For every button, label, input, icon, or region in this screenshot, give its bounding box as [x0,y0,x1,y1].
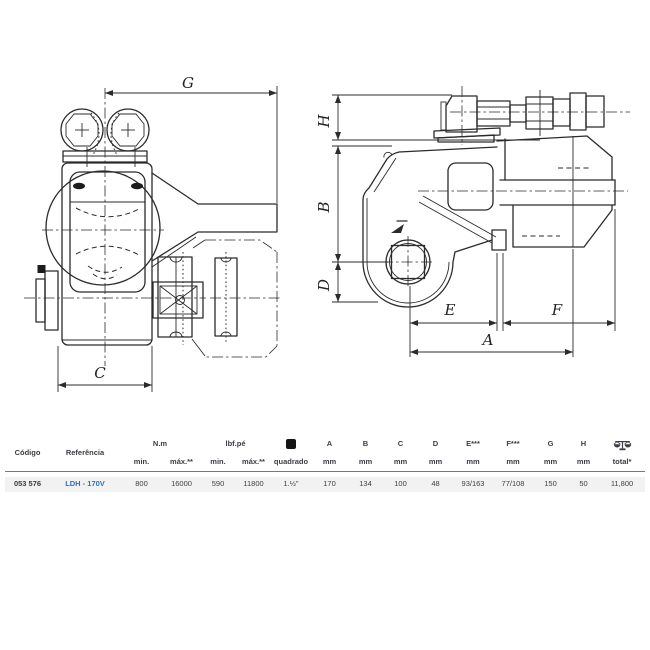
col-header-h: H [568,436,599,453]
unit-mm-f: mm [493,453,533,472]
col-header-d: D [418,436,453,453]
cell-quadrado: 1.½" [271,477,311,492]
unit-mm-g: mm [533,453,568,472]
col-header-referencia: Referência [50,436,120,472]
subheader-nm-min: min. [120,453,163,472]
subheader-nm-max: máx.** [163,453,200,472]
col-header-codigo: Código [5,436,50,472]
col-header-g: G [533,436,568,453]
dim-label-g: G [182,74,194,92]
unit-mm-a: mm [311,453,348,472]
table-row: 053 576 LDH - 170V 800 16000 590 11800 1… [5,477,645,492]
dim-label-b: B [315,201,333,213]
col-header-b: B [348,436,383,453]
cell-d: 48 [418,477,453,492]
dim-label-f: F [551,301,563,319]
cell-a: 170 [311,477,348,492]
weight-scale-icon-cell [599,436,645,453]
cell-lbf-max: 11800 [236,477,271,492]
cell-referencia-link[interactable]: LDH - 170V [50,477,120,492]
cell-codigo: 053 576 [5,477,50,492]
subheader-lbf-min: min. [200,453,236,472]
col-header-a: A [311,436,348,453]
cell-b: 134 [348,477,383,492]
cell-total: 11,800 [599,477,645,492]
col-header-c: C [383,436,418,453]
dim-label-d: D [315,279,333,292]
subheader-total: total* [599,453,645,472]
cell-nm-min: 800 [120,477,163,492]
unit-mm-h: mm [568,453,599,472]
cell-f: 77/108 [493,477,533,492]
unit-mm-d: mm [418,453,453,472]
unit-mm-b: mm [348,453,383,472]
col-group-nm: N.m [120,436,200,453]
product-spec-sheet: G C [0,0,650,650]
cell-nm-max: 16000 [163,477,200,492]
col-header-e: E*** [453,436,493,453]
subheader-lbf-max: máx.** [236,453,271,472]
subheader-quadrado: quadrado [271,453,311,472]
side-view-drawing: H B D E F A [315,86,630,357]
cell-h: 50 [568,477,599,492]
spec-table: Código Referência N.m lbf.pé A B C D E**… [5,436,645,492]
cell-c: 100 [383,477,418,492]
dim-label-e: E [444,301,456,319]
col-group-lbfpe: lbf.pé [200,436,271,453]
dim-label-a: A [481,331,494,349]
square-drive-icon [286,439,296,449]
dim-label-c: C [94,364,106,382]
cell-e: 93/163 [453,477,493,492]
col-header-f: F*** [493,436,533,453]
top-view-drawing: G C [24,74,280,392]
cell-lbf-min: 590 [200,477,236,492]
technical-drawing: G C [0,0,650,430]
unit-mm-c: mm [383,453,418,472]
dim-label-h: H [315,114,333,129]
unit-mm-e: mm [453,453,493,472]
weight-scale-icon [613,439,632,451]
square-drive-icon-cell [271,436,311,453]
cell-g: 150 [533,477,568,492]
